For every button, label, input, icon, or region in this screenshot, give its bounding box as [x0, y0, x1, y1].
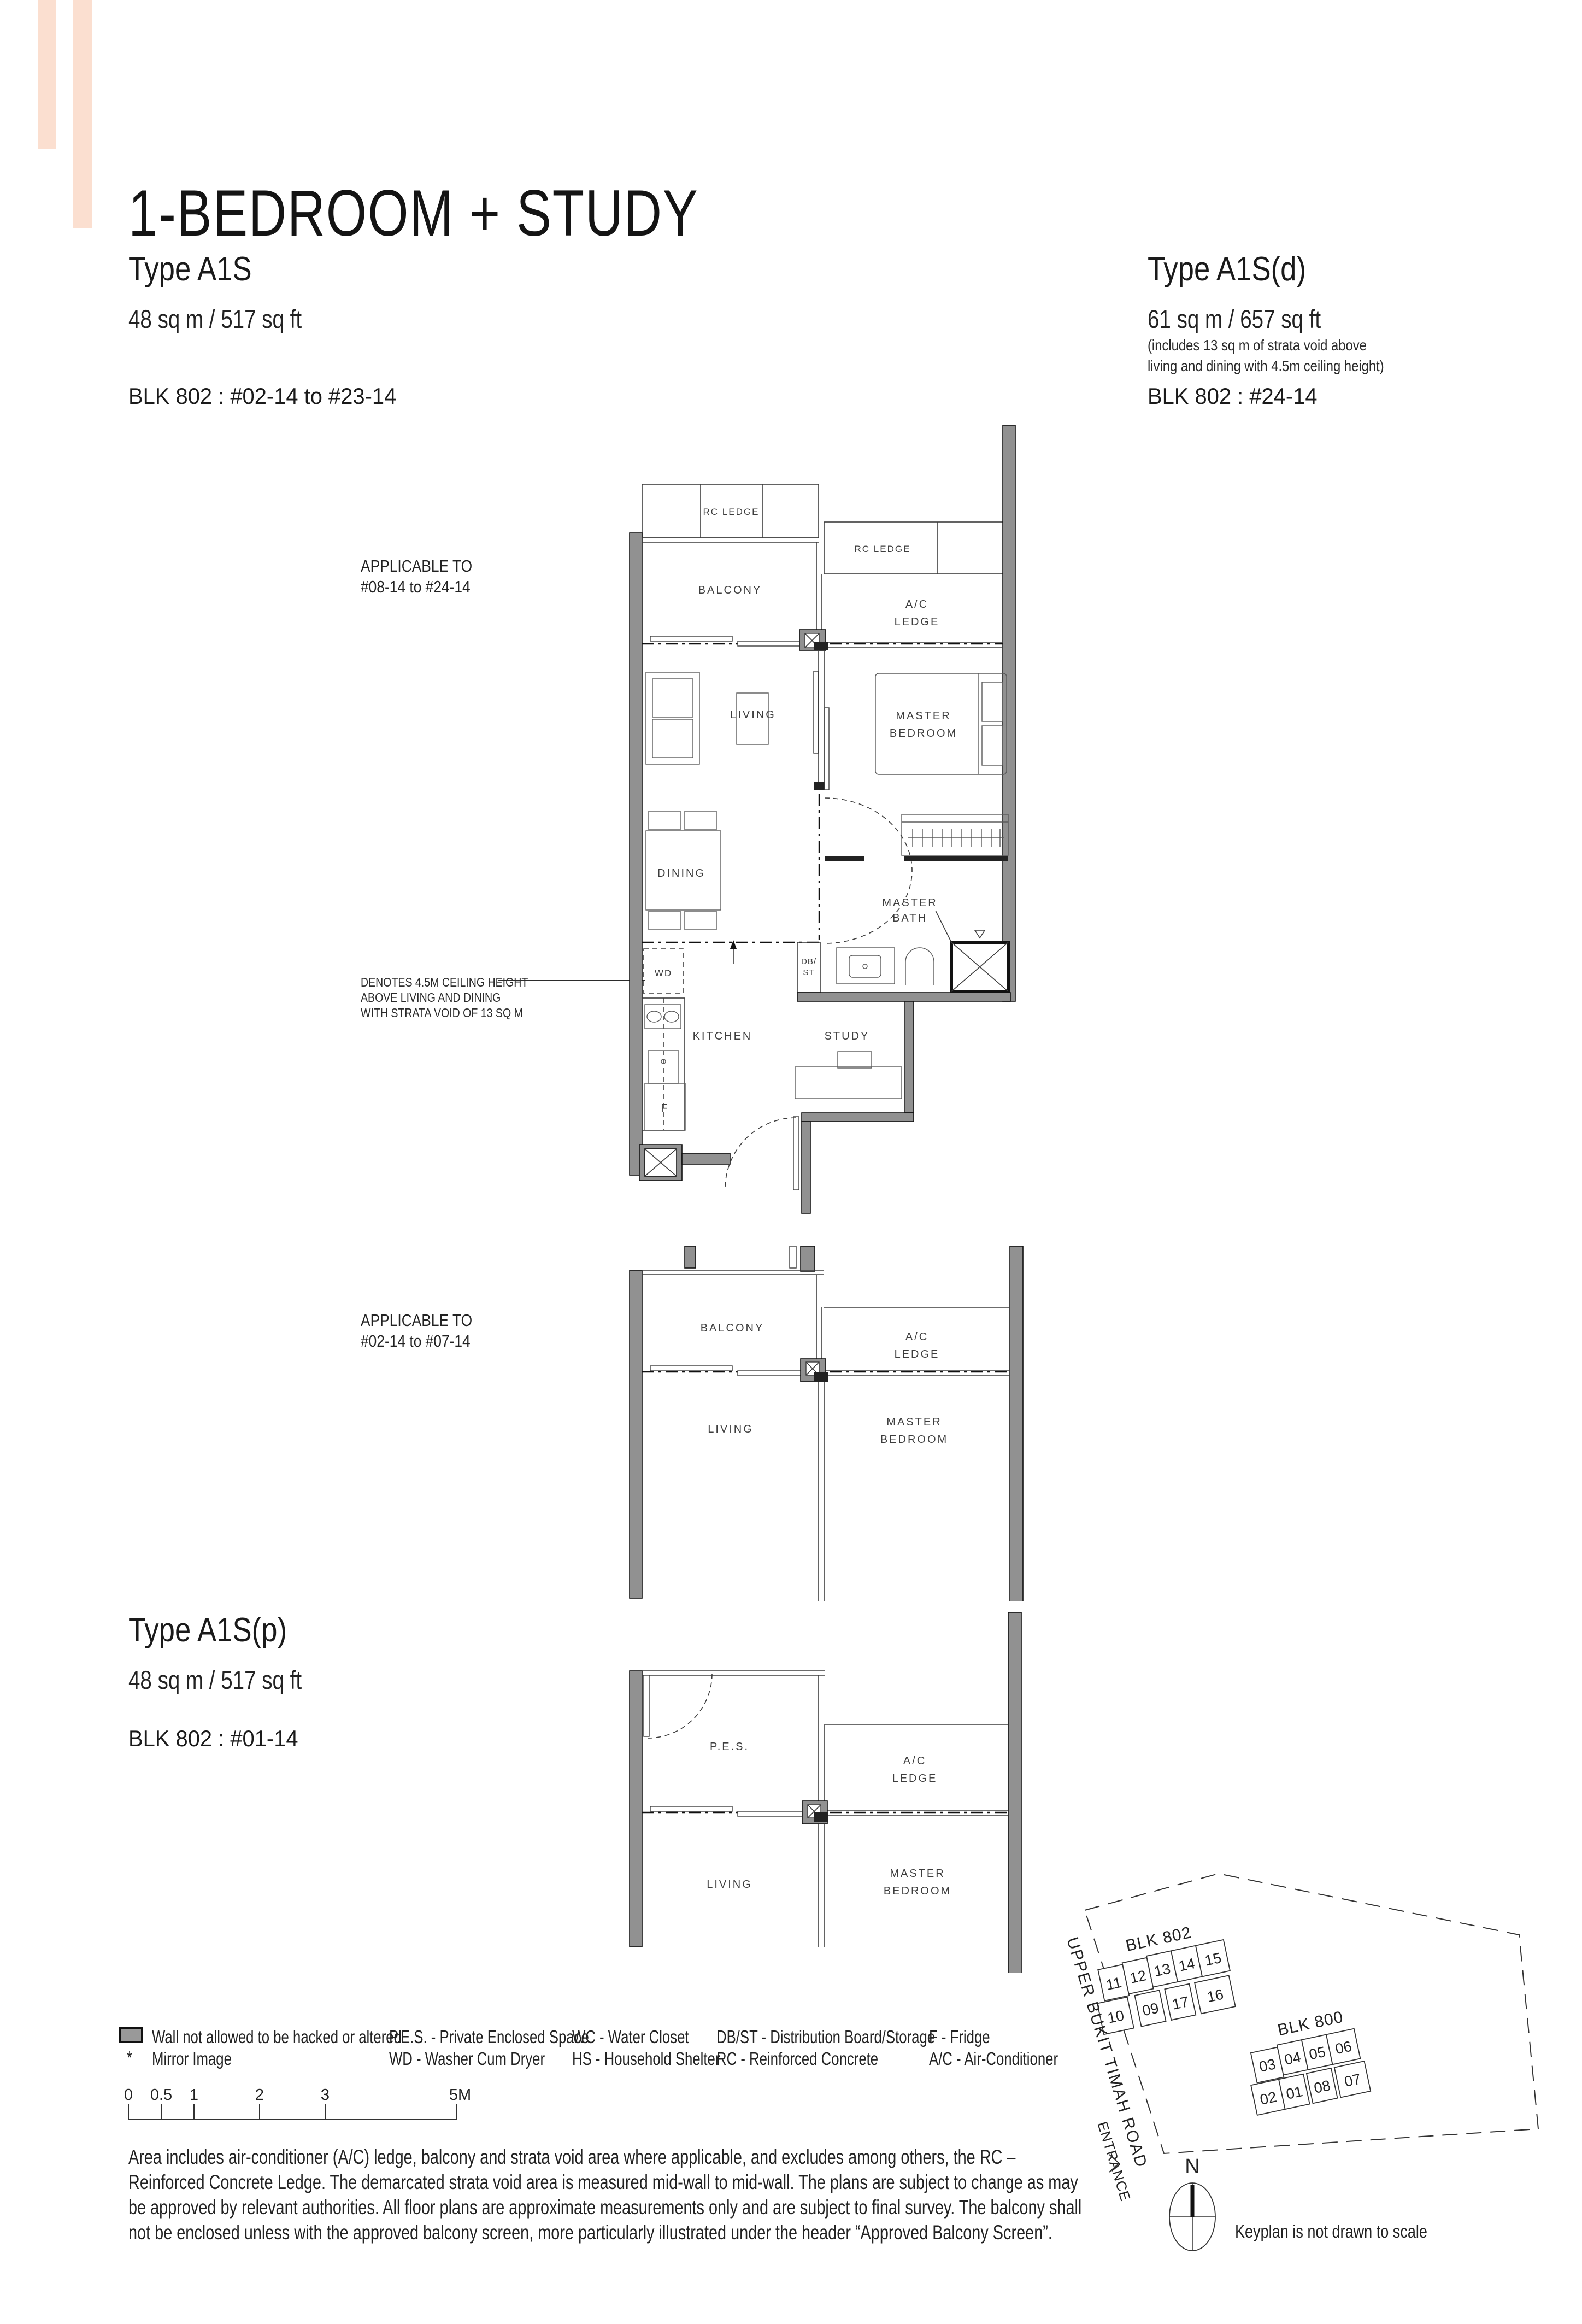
demarcation-arrow [730, 940, 737, 949]
scale-tick-label: 0.5 [150, 2088, 172, 2104]
legend-wd: WD - Washer Cum Dryer [389, 2050, 589, 2068]
room-label-dbst-1: DB/ [801, 957, 816, 966]
unit-label: 06 [1334, 2038, 1354, 2058]
room-label-living: LIVING [708, 1423, 754, 1435]
legend-ac: A/C - Air-Conditioner [929, 2050, 1095, 2068]
room-label-wd: WD [655, 968, 672, 978]
room-label-kitchen: KITCHEN [693, 1030, 752, 1042]
plan1-applicable-line1: APPLICABLE TO [361, 557, 492, 574]
strata-void-note-line1: DENOTES 4.5M CEILING HEIGHT [361, 976, 557, 989]
strata-void-note-line2: ABOVE LIVING AND DINING [361, 991, 526, 1005]
legend-wc: WC - Water Closet [572, 2028, 722, 2046]
unit-label: 16 [1205, 1986, 1225, 2006]
bath-vanity [837, 948, 895, 984]
floor-plan-type-a1s: RC LEDGE RC LEDGE BALCONY A/C LEDGE [596, 415, 1038, 1246]
wall-left [630, 1671, 642, 1947]
type-a1sd-area: 61 sq m / 657 sq ft [1148, 306, 1359, 332]
room-label-pes: P.E.S. [710, 1741, 749, 1753]
wall-left [630, 533, 642, 1175]
room-label-master-2: BEDROOM [880, 1434, 948, 1446]
scale-tick-label: 1 [190, 2088, 198, 2104]
scale-tick-label: 5M [449, 2088, 471, 2104]
type-a1sp-name: Type A1S(p) [128, 1613, 315, 1647]
room-label-dbst-2: ST [803, 968, 814, 977]
page-title: 1-BEDROOM + STUDY [128, 180, 841, 246]
room-label-master-1: MASTER [890, 1868, 945, 1880]
wall-legend-swatch [119, 2027, 143, 2043]
plan1-applicable-line2: #08-14 to #24-14 [361, 578, 490, 595]
door-arc-entrance [725, 1118, 796, 1189]
type-a1sp-area: 48 sq m / 517 sq ft [128, 1667, 340, 1693]
floorplan-page: 1-BEDROOM + STUDY Type A1S 48 sq m / 517… [0, 0, 1582, 2324]
accent-bar-right [73, 0, 92, 228]
floor-plan-type-a1sp: P.E.S. A/C LEDGE LIVING MASTER BEDROOM [596, 1612, 1038, 1973]
disclaimer: Area includes air-conditioner (A/C) ledg… [128, 2145, 1358, 2245]
unit-label: 07 [1343, 2070, 1363, 2090]
unit-label: 17 [1171, 1993, 1190, 2013]
room-label-rc-ledge-right: RC LEDGE [855, 544, 911, 554]
wall-right [1008, 1612, 1021, 1973]
type-a1s-block: BLK 802 : #02-14 to #23-14 [128, 385, 410, 408]
type-a1sp-block: BLK 802 : #01-14 [128, 1727, 307, 1750]
room-label-ac-ledge-1: A/C [905, 1331, 928, 1343]
unit-label: 12 [1128, 1967, 1148, 1987]
unit-label: 15 [1203, 1950, 1223, 1969]
room-label-ac-ledge-1: A/C [905, 598, 928, 611]
blk-800-cluster: BLK 800 03 04 05 06 02 01 08 07 [1239, 2005, 1371, 2115]
wall-left [630, 1270, 642, 1598]
wardrobe [902, 814, 1008, 855]
room-label-ac-ledge-1: A/C [903, 1755, 926, 1767]
room-label-living: LIVING [730, 709, 776, 721]
floor-plan-type-a1s-lower: BALCONY A/C LEDGE LIVING MASTER BEDROOM [596, 1246, 1038, 1601]
type-a1s-name: Type A1S [128, 253, 273, 286]
blk-802-cluster: BLK 802 11 12 13 14 15 10 09 17 16 [1085, 1917, 1238, 2034]
unit-label: 10 [1106, 2007, 1126, 2027]
wall-entry-corridor [802, 1122, 810, 1213]
floor-trap [975, 930, 985, 938]
strata-void-note-line3: WITH STRATA VOID OF 13 SQ M [361, 1007, 551, 1020]
unit-label: 01 [1285, 2083, 1304, 2103]
wall-bath-bottom [797, 993, 1010, 1001]
room-label-master-2: BEDROOM [884, 1885, 951, 1897]
type-a1s-area: 48 sq m / 517 sq ft [128, 306, 340, 332]
plan2-applicable-line1: APPLICABLE TO [361, 1312, 492, 1329]
plan2-applicable-line2: #02-14 to #07-14 [361, 1333, 490, 1349]
room-label-balcony: BALCONY [701, 1322, 764, 1334]
room-label-master-1: MASTER [896, 710, 951, 722]
unit-label: 14 [1177, 1955, 1197, 1975]
wall-study-right [905, 1001, 914, 1113]
room-label-master-1: MASTER [886, 1416, 942, 1428]
room-label-bath-2: BATH [892, 912, 927, 924]
unit-label: 04 [1283, 2049, 1303, 2068]
legend-rc: RC - Reinforced Concrete [716, 2050, 924, 2068]
rc-ledge-right-box [824, 522, 1008, 574]
room-label-ac-ledge-2: LEDGE [895, 1348, 940, 1360]
type-a1sd-note-line2: living and dining with 4.5m ceiling heig… [1148, 359, 1426, 374]
room-label-fridge: F [661, 1102, 669, 1114]
type-a1sd-block: BLK 802 : #24-14 [1148, 385, 1326, 408]
pes-door-leaf [644, 1675, 649, 1736]
unit-label: 02 [1258, 2088, 1278, 2108]
legend-mirror: Mirror Image [152, 2050, 254, 2068]
wall-study-bottom [802, 1113, 914, 1122]
room-label-ac-ledge-2: LEDGE [895, 616, 940, 628]
scale-bar: 0 0.5 1 2 3 5M [120, 2088, 481, 2132]
mirror-image-symbol: * [127, 2049, 134, 2067]
room-label-ac-ledge-2: LEDGE [892, 1773, 938, 1785]
db-st-box [797, 942, 820, 993]
scale-tick-label: 2 [255, 2088, 264, 2104]
room-label-rc-ledge-left: RC LEDGE [703, 507, 760, 517]
unit-label: 03 [1258, 2056, 1278, 2075]
scale-tick-label: 3 [321, 2088, 330, 2104]
door-arc-pes [648, 1674, 712, 1738]
wall-right [1003, 425, 1015, 1001]
room-label-bath-1: MASTER [882, 897, 937, 909]
unit-label: 05 [1308, 2044, 1327, 2063]
accent-bar-left [38, 0, 56, 149]
wall-right [1010, 1246, 1023, 1601]
legend-f: F - Fridge [929, 2028, 1007, 2046]
unit-label: 09 [1141, 2000, 1161, 2020]
type-a1sd-note-line1: (includes 13 sq m of strata void above [1148, 338, 1405, 353]
unit-label: 13 [1152, 1961, 1172, 1980]
wardrobe-hangers [913, 829, 1000, 847]
scale-tick-label: 0 [124, 2088, 133, 2104]
room-label-master-2: BEDROOM [890, 727, 957, 740]
room-label-living: LIVING [707, 1879, 752, 1891]
entrance-door-leaf [793, 1117, 799, 1190]
room-label-balcony: BALCONY [698, 584, 762, 596]
type-a1sd-name: Type A1S(d) [1148, 253, 1334, 286]
room-label-dining: DINING [657, 867, 705, 879]
hob [645, 1005, 681, 1029]
sofa [646, 672, 699, 764]
unit-label: 08 [1313, 2077, 1332, 2097]
toilet [905, 948, 934, 985]
room-label-study: STUDY [825, 1030, 870, 1042]
study-desk [795, 1067, 902, 1099]
